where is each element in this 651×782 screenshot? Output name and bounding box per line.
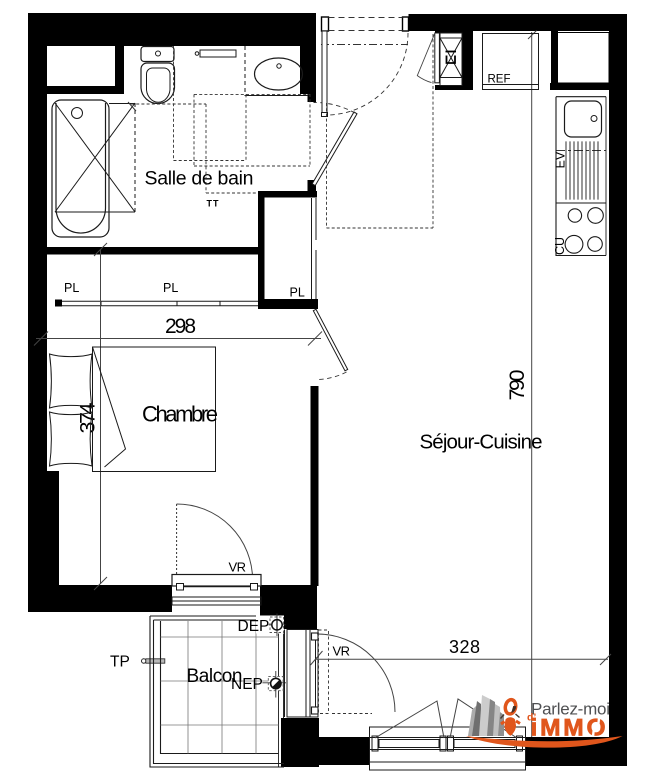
svg-text:TP: TP bbox=[110, 654, 130, 671]
svg-text:CU: CU bbox=[553, 237, 567, 255]
svg-text:PL: PL bbox=[64, 281, 79, 295]
svg-text:DEP: DEP bbox=[238, 618, 270, 635]
svg-text:Salle de bain: Salle de bain bbox=[145, 168, 254, 190]
svg-text:298: 298 bbox=[165, 315, 196, 338]
svg-text:328: 328 bbox=[449, 637, 480, 657]
svg-text:PL: PL bbox=[163, 281, 178, 295]
svg-text:EV: EV bbox=[554, 151, 568, 168]
svg-text:NEP: NEP bbox=[231, 676, 263, 693]
svg-text:VR: VR bbox=[229, 560, 247, 575]
svg-text:REF: REF bbox=[488, 74, 511, 86]
svg-text:TT: TT bbox=[207, 199, 220, 209]
svg-text:iMMO: iMMO bbox=[531, 714, 606, 741]
svg-text:790: 790 bbox=[505, 369, 529, 400]
svg-text:Séjour-Cuisine: Séjour-Cuisine bbox=[420, 431, 543, 454]
svg-text:PL: PL bbox=[290, 286, 305, 300]
svg-text:Chambre: Chambre bbox=[142, 402, 218, 427]
svg-text:VR: VR bbox=[333, 644, 351, 659]
